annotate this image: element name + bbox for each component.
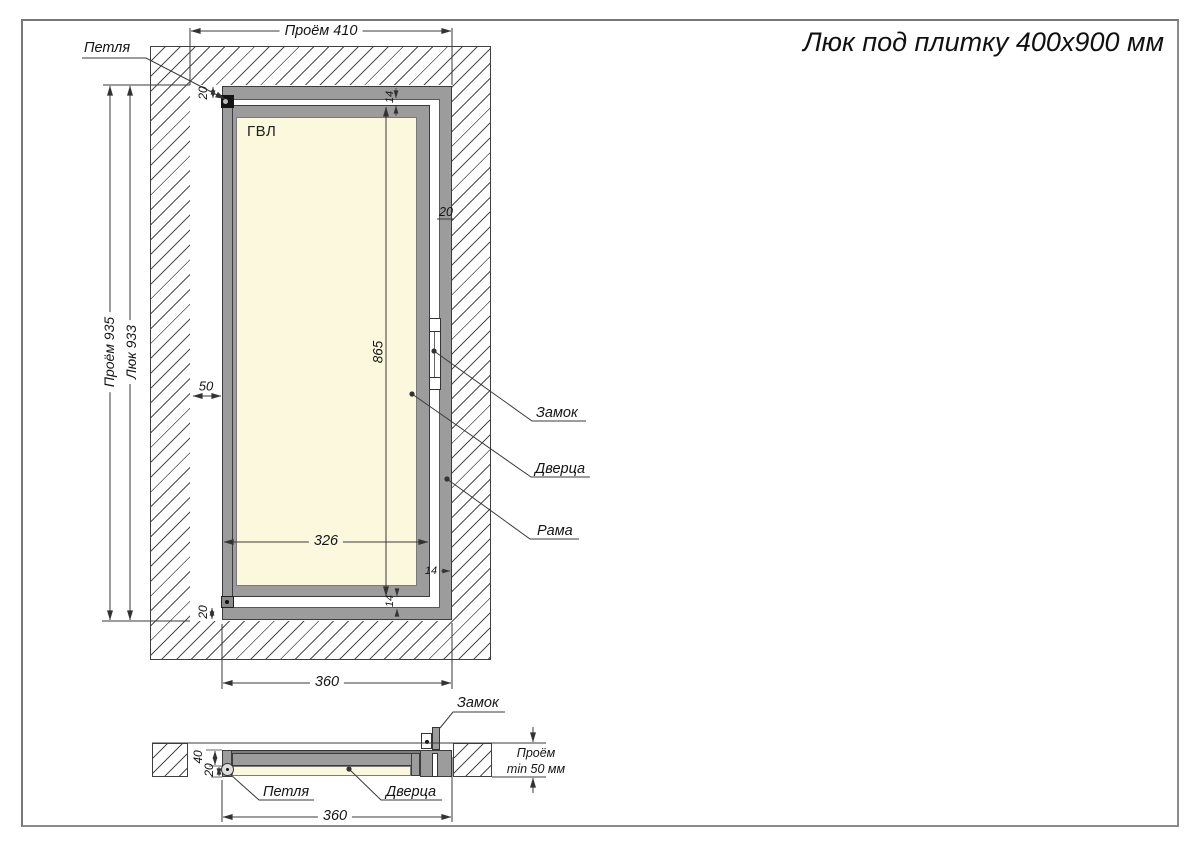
dim-depth-door: 20 [202,763,216,776]
label-door-front: Дверца [535,461,585,477]
labels-layer: Проём 410 Проём 935 Люк 933 50 20 14 20 … [0,0,1200,849]
dim-hinge-offset-top: 20 [196,86,210,99]
label-lock-front: Замок [536,405,578,421]
dim-opening-height: Проём 935 [101,312,117,392]
dim-door-width: 326 [309,533,343,549]
dim-depth-total: 40 [191,750,205,763]
label-frame-front: Рама [537,523,573,539]
dim-frame-face-right: 20 [439,205,453,219]
label-hinge-section: Петля [263,784,309,800]
dim-hatch-height: Люк 933 [123,320,139,384]
label-lock-section: Замок [457,695,499,711]
dim-gap-top: 14 [384,91,396,103]
drawing-sheet: Люк под плитку 400x900 мм [0,0,1200,849]
dim-door-height: 865 [371,341,386,364]
label-door-section: Дверца [386,784,436,800]
label-gvl: ГВЛ [247,123,276,140]
dim-hinge-offset-bottom: 20 [196,605,210,618]
dim-opening-depth-2: min 50 мм [507,762,565,776]
dim-opening-width: Проём 410 [280,23,363,39]
dim-side-gap: 50 [199,379,213,394]
label-hinge-front: Петля [84,40,130,56]
dim-opening-depth-1: Проём [517,746,555,760]
dim-frame-width-section: 360 [318,808,352,824]
dim-gap-right: 14 [425,565,437,577]
dim-frame-width: 360 [310,674,344,690]
dim-gap-bottom: 14 [384,595,396,607]
